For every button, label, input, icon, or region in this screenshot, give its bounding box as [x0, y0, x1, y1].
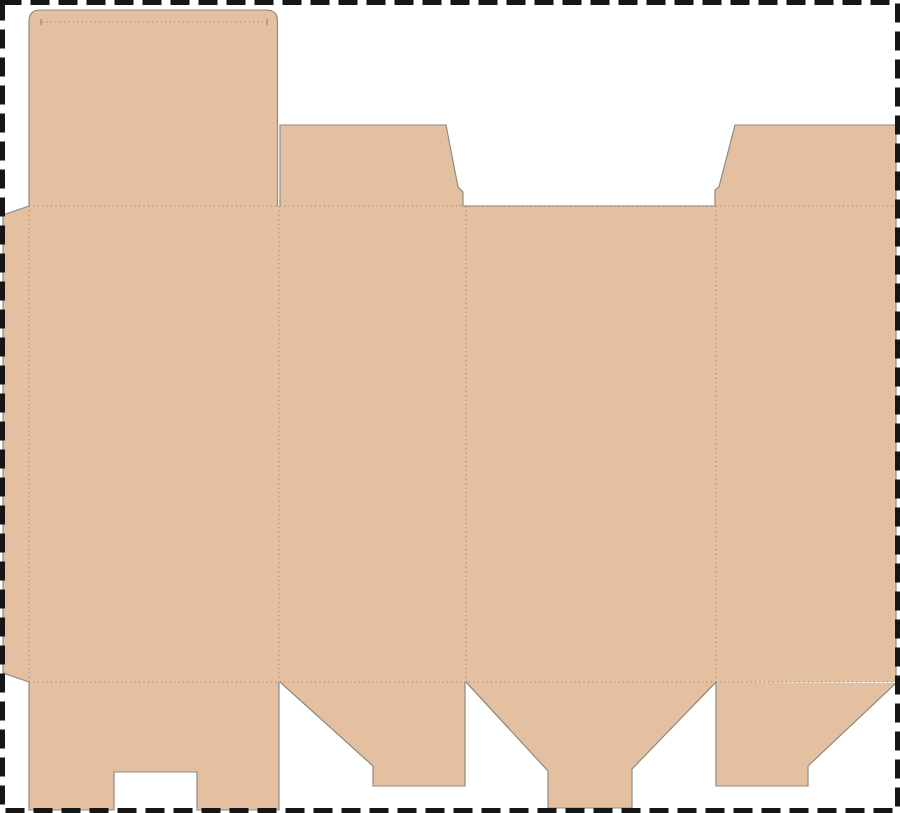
dieline-svg [0, 0, 900, 813]
top-dust-flap-right [715, 125, 896, 206]
tuck-lid-flap [29, 10, 278, 206]
dieline-template-image [0, 0, 900, 813]
main-panels-body [29, 206, 896, 682]
top-dust-flap-left [280, 125, 463, 206]
glue-tab [3, 206, 29, 682]
